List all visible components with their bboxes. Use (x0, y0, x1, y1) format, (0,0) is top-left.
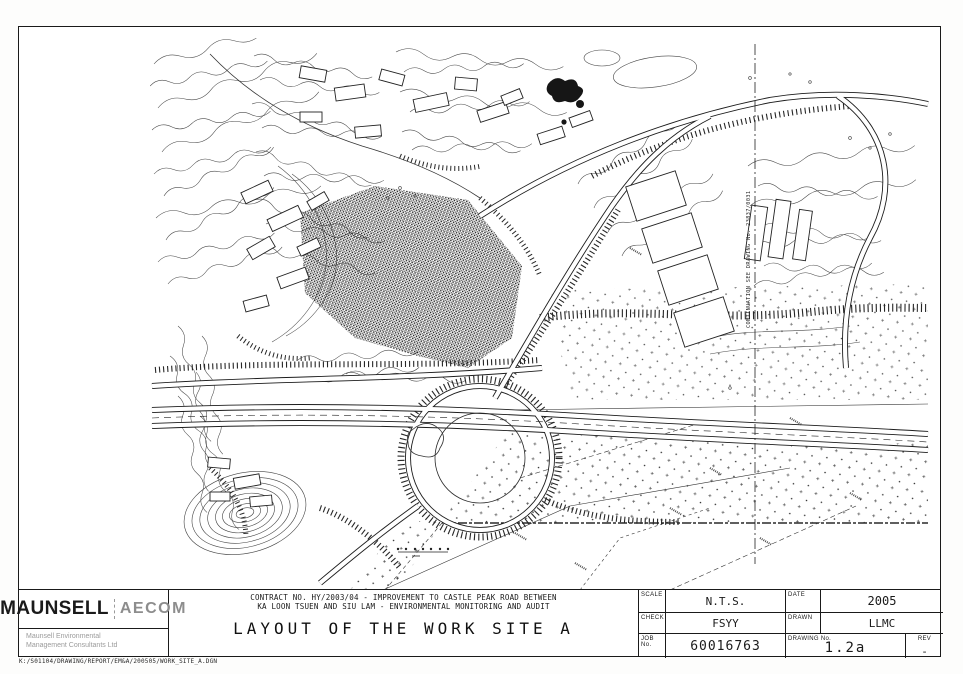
title-block-fields: SCALE N.T.S. DATE 2005 CHECK FSYY DRAWN … (638, 590, 942, 656)
rev-cell: REV - (905, 634, 943, 658)
drawn-label: DRAWN (785, 613, 820, 634)
drawn-value: LLMC (820, 613, 943, 634)
job-no-value: 60016763 (665, 634, 785, 658)
date-label: DATE (785, 590, 820, 613)
site-map-drawing: CONTINUATION SEE DRAWING No. 23837/0031 (150, 38, 930, 590)
contract-line2: KA LOON TSUEN AND SIU LAM - ENVIRONMENTA… (169, 602, 638, 611)
scale-value: N.T.S. (665, 590, 785, 613)
check-label: CHECK (639, 613, 665, 634)
rev-label: REV (918, 636, 931, 642)
drawing-no-label: DRAWING No. (788, 636, 831, 642)
job-no-label: JOB No. (639, 634, 665, 658)
company-logo: MAUNSELL AECOM (19, 590, 168, 629)
file-path: K:/S01104/DRAWING/REPORT/EM&A/200505/WOR… (19, 658, 217, 665)
contract-text: CONTRACT NO. HY/2003/04 - IMPROVEMENT TO… (169, 593, 638, 611)
hill-contours (175, 459, 315, 567)
logo-maunsell: MAUNSELL (0, 598, 109, 620)
check-value: FSYY (665, 613, 785, 634)
drawing-no-cell: DRAWING No. 1.2a (785, 634, 905, 658)
drawing-sheet: { "sheet": { "file_path": "K:/S01104/DRA… (0, 0, 963, 674)
drawing-no-value: 1.2a (825, 640, 867, 656)
company-subtitle: Maunsell Environmental Management Consul… (19, 629, 168, 650)
title-cell: CONTRACT NO. HY/2003/04 - IMPROVEMENT TO… (169, 590, 638, 656)
date-value: 2005 (820, 590, 943, 613)
company-subtitle-line1: Maunsell Environmental (26, 632, 168, 641)
drawing-title: LAYOUT OF THE WORK SITE A (169, 619, 638, 638)
logo-cell: MAUNSELL AECOM Maunsell Environmental Ma… (19, 590, 169, 656)
scale-label: SCALE (639, 590, 665, 613)
continuation-note: CONTINUATION SEE DRAWING No. 23837/0031 (746, 191, 752, 328)
title-block: MAUNSELL AECOM Maunsell Environmental Ma… (18, 589, 941, 657)
contract-line1: CONTRACT NO. HY/2003/04 - IMPROVEMENT TO… (169, 593, 638, 602)
logo-divider (114, 599, 115, 619)
company-subtitle-line2: Management Consultants Ltd (26, 641, 168, 650)
rev-value: - (921, 645, 928, 658)
